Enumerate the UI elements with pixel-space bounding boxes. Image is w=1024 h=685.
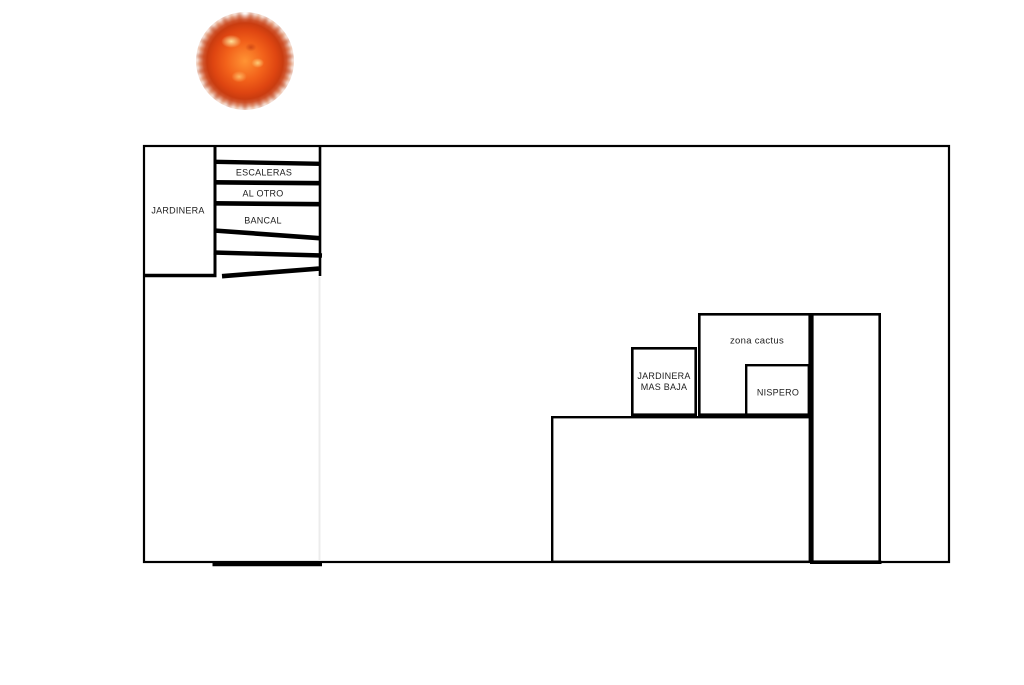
left-planter-label: JARDINERA [151,206,204,217]
plan-linework [0,0,1024,685]
outer-boundary [144,146,949,562]
lower-planter-label-line2: MAS BAJA [637,382,690,393]
lower-planter-label: JARDINERA MAS BAJA [637,371,690,393]
stair-tread-1 [215,162,321,164]
stair-tread-2 [214,182,322,183]
stairs-label-line1: ESCALERAS [236,168,292,179]
stairs-label-line2: AL OTRO [243,189,284,200]
stairs-label-line3: BANCAL [244,216,282,227]
stair-tread-5 [214,253,323,256]
nispero-label: NISPERO [757,388,799,399]
lower-planter-label-line1: JARDINERA [637,371,690,382]
stair-tread-4 [214,231,320,239]
stair-tread-6 [222,269,319,277]
stair-tread-3 [214,203,322,204]
big-lower-box [552,417,810,562]
tall-right-box [812,314,879,561]
cactus-zone-label: zona cactus [730,336,784,347]
garden-plan-canvas: JARDINERA ESCALERAS AL OTRO BANCAL zona … [0,0,1024,685]
